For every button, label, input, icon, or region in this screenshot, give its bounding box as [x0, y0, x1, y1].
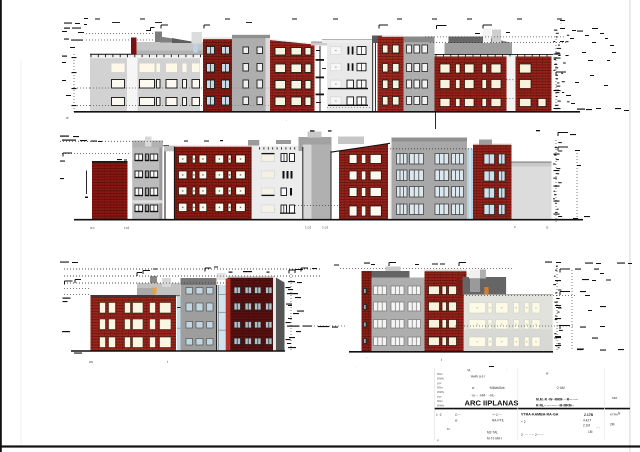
- svg-text:MM·: MM·: [612, 396, 618, 400]
- svg-text:.: .: [286, 117, 287, 122]
- svg-text:·+·2····: ·+·2····: [492, 413, 502, 417]
- svg-text:4.42T: 4.42T: [583, 419, 591, 423]
- svg-text:a⇅: a⇅: [89, 360, 94, 364]
- svg-text:·´ru··· ·HM·· ··HL··: ·´ru··· ·HM·· ··HL··: [470, 394, 496, 398]
- svg-text:..: ..: [366, 355, 368, 359]
- svg-text:2M: 2M: [610, 423, 615, 427]
- svg-text:t: t: [167, 360, 168, 364]
- svg-text:RA·PTIL: RA·PTIL: [492, 419, 504, 423]
- svg-text:M2·TAL: M2·TAL: [487, 431, 498, 435]
- svg-text:VTRA·KAMBA·RA·GA: VTRA·KAMBA·RA·GA: [521, 413, 559, 417]
- svg-text:·2·AM: ·2·AM: [556, 386, 565, 390]
- svg-text:NNv: NNv: [437, 386, 443, 390]
- svg-text:1.o1: 1.o1: [305, 226, 311, 230]
- svg-text:yyv: yyv: [437, 395, 442, 399]
- svg-text:2· ··· ····· 2·······: 2· ··· ····· 2·······: [521, 433, 544, 437]
- svg-text:··: ··: [506, 367, 508, 371]
- svg-text:WWv: WWv: [437, 404, 445, 408]
- svg-text:·: ·: [617, 401, 618, 405]
- svg-text:+ 2: + 2: [521, 420, 526, 424]
- svg-text:·: ·: [355, 365, 356, 369]
- svg-text:t.o1: t.o1: [124, 226, 130, 230]
- svg-text:R·RL·· ········· ·M·MRM··: R·RL·· ········· ·M·MRM··: [536, 404, 574, 408]
- svg-text:ARC IIPLANAS: ARC IIPLANAS: [465, 399, 519, 408]
- svg-text:··: ··: [560, 22, 562, 26]
- svg-text:2.1M: 2.1M: [583, 424, 590, 428]
- svg-text:´Awrk a·s r: ´Awrk a·s r: [470, 375, 486, 379]
- svg-text:M.M.·R ·W··RRM· ··R········: M.M.·R ·W··RRM· ··R········: [536, 398, 578, 402]
- svg-text:1M: 1M: [588, 430, 593, 434]
- svg-text:←·: ←·: [596, 426, 600, 430]
- svg-text:⇅: ⇅: [546, 226, 549, 230]
- svg-text:WWv: WWv: [437, 390, 445, 394]
- svg-text:2.17B: 2.17B: [584, 413, 594, 417]
- svg-text:1 ·2: 1 ·2: [436, 413, 442, 417]
- svg-text:t: t: [441, 358, 442, 362]
- svg-text:C····: C····: [455, 413, 462, 417]
- svg-text:NNv: NNv: [437, 399, 443, 403]
- svg-text:⇅o: ⇅o: [90, 226, 95, 230]
- svg-text:·MMaMArk·: ·MMaMArk·: [489, 386, 506, 390]
- svg-text:WWv: WWv: [437, 377, 445, 381]
- svg-text:1.o1: 1.o1: [322, 226, 328, 230]
- svg-text:NNv: NNv: [437, 372, 443, 376]
- svg-text:KTRA: KTRA: [610, 413, 618, 417]
- svg-text:M·TJ·MA·I: M·TJ·MA·I: [487, 437, 502, 441]
- svg-text:yyv: yyv: [437, 381, 442, 385]
- svg-text:··M: ··M: [445, 427, 450, 431]
